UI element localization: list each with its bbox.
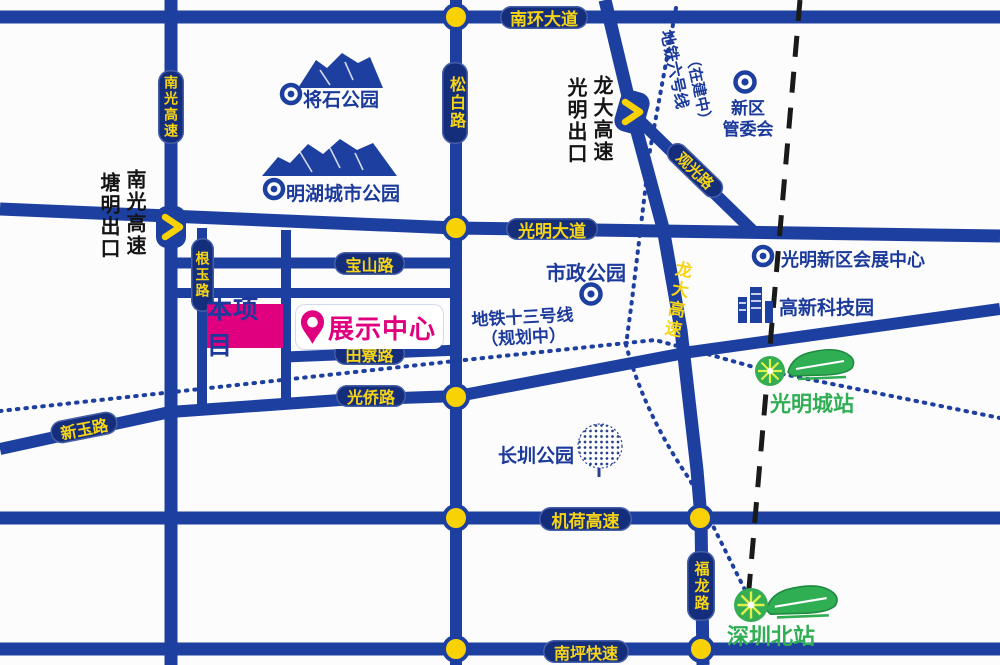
station-label-guangmingcheng: 光明城站 xyxy=(770,388,854,418)
showroom-panel: 展示中心 xyxy=(296,305,443,349)
road-label-fulong: 福龙路 xyxy=(687,551,715,621)
park-label-changzhen: 长圳公园 xyxy=(498,441,574,468)
project-site-badge: 本项目 xyxy=(207,304,283,348)
bullseye-icon xyxy=(754,247,772,265)
showroom-label: 展示中心 xyxy=(328,309,436,346)
pin-icon xyxy=(300,310,325,345)
tree-icon xyxy=(578,424,622,477)
exit-label-tangming: 塘明出口 xyxy=(98,172,118,260)
mountain-icon xyxy=(262,139,397,176)
starburst-icon xyxy=(755,356,785,386)
road-label-songbai: 松白路 xyxy=(442,62,468,144)
exit-label-guangming: 光明出口 xyxy=(565,77,585,165)
bullseye-icon xyxy=(282,85,300,103)
train-icon xyxy=(766,586,837,618)
metro-line13-status: （规划中） xyxy=(481,325,567,348)
landmark-convention-center: 光明新区会展中心 xyxy=(781,246,925,272)
exit-label-nanguang-expwy: 南光高速 xyxy=(124,169,144,257)
xinqu-line2: 管委会 xyxy=(723,120,774,139)
train-icon xyxy=(788,350,854,379)
location-map: 南环大道 光明大道 宝山路 田寮路 光侨路 新玉路 机荷高速 南坪快速 观光路 … xyxy=(0,0,1000,665)
mountain-icon xyxy=(298,53,383,88)
buildings-icon xyxy=(738,287,773,323)
road-label-jihe: 机荷高速 xyxy=(539,507,632,531)
park-label-shizheng: 市政公园 xyxy=(546,257,626,286)
park-label-minghu: 明湖城市公园 xyxy=(286,179,400,206)
road-label-guangqiao: 光侨路 xyxy=(336,385,406,407)
landmark-xinqu-committee: 新区 管委会 xyxy=(717,98,779,140)
road-label-guangming-avenue: 光明大道 xyxy=(506,218,598,240)
road-label-nanping: 南坪快速 xyxy=(543,640,629,663)
park-label-jiangshi: 将石公园 xyxy=(303,85,379,112)
exit-label-longda-expwy: 龙大高速 xyxy=(591,75,611,163)
road-label-baoshan: 宝山路 xyxy=(334,252,405,275)
metro-line13-label: 地铁十三号线 （规划中） xyxy=(461,305,585,350)
starburst-icon xyxy=(734,588,768,622)
exit-node-left xyxy=(156,206,186,248)
bullseye-icon xyxy=(736,73,755,92)
bullseye-icon xyxy=(582,285,601,304)
xinqu-line1: 新区 xyxy=(731,99,765,118)
station-label-shenzhenbei: 深圳北站 xyxy=(727,619,815,651)
road-label-nanhuan: 南环大道 xyxy=(500,6,588,29)
landmark-hightech-park: 高新科技园 xyxy=(779,293,874,320)
bullseye-icon xyxy=(265,180,283,198)
road-label-nanguang: 南光高速 xyxy=(158,70,184,144)
